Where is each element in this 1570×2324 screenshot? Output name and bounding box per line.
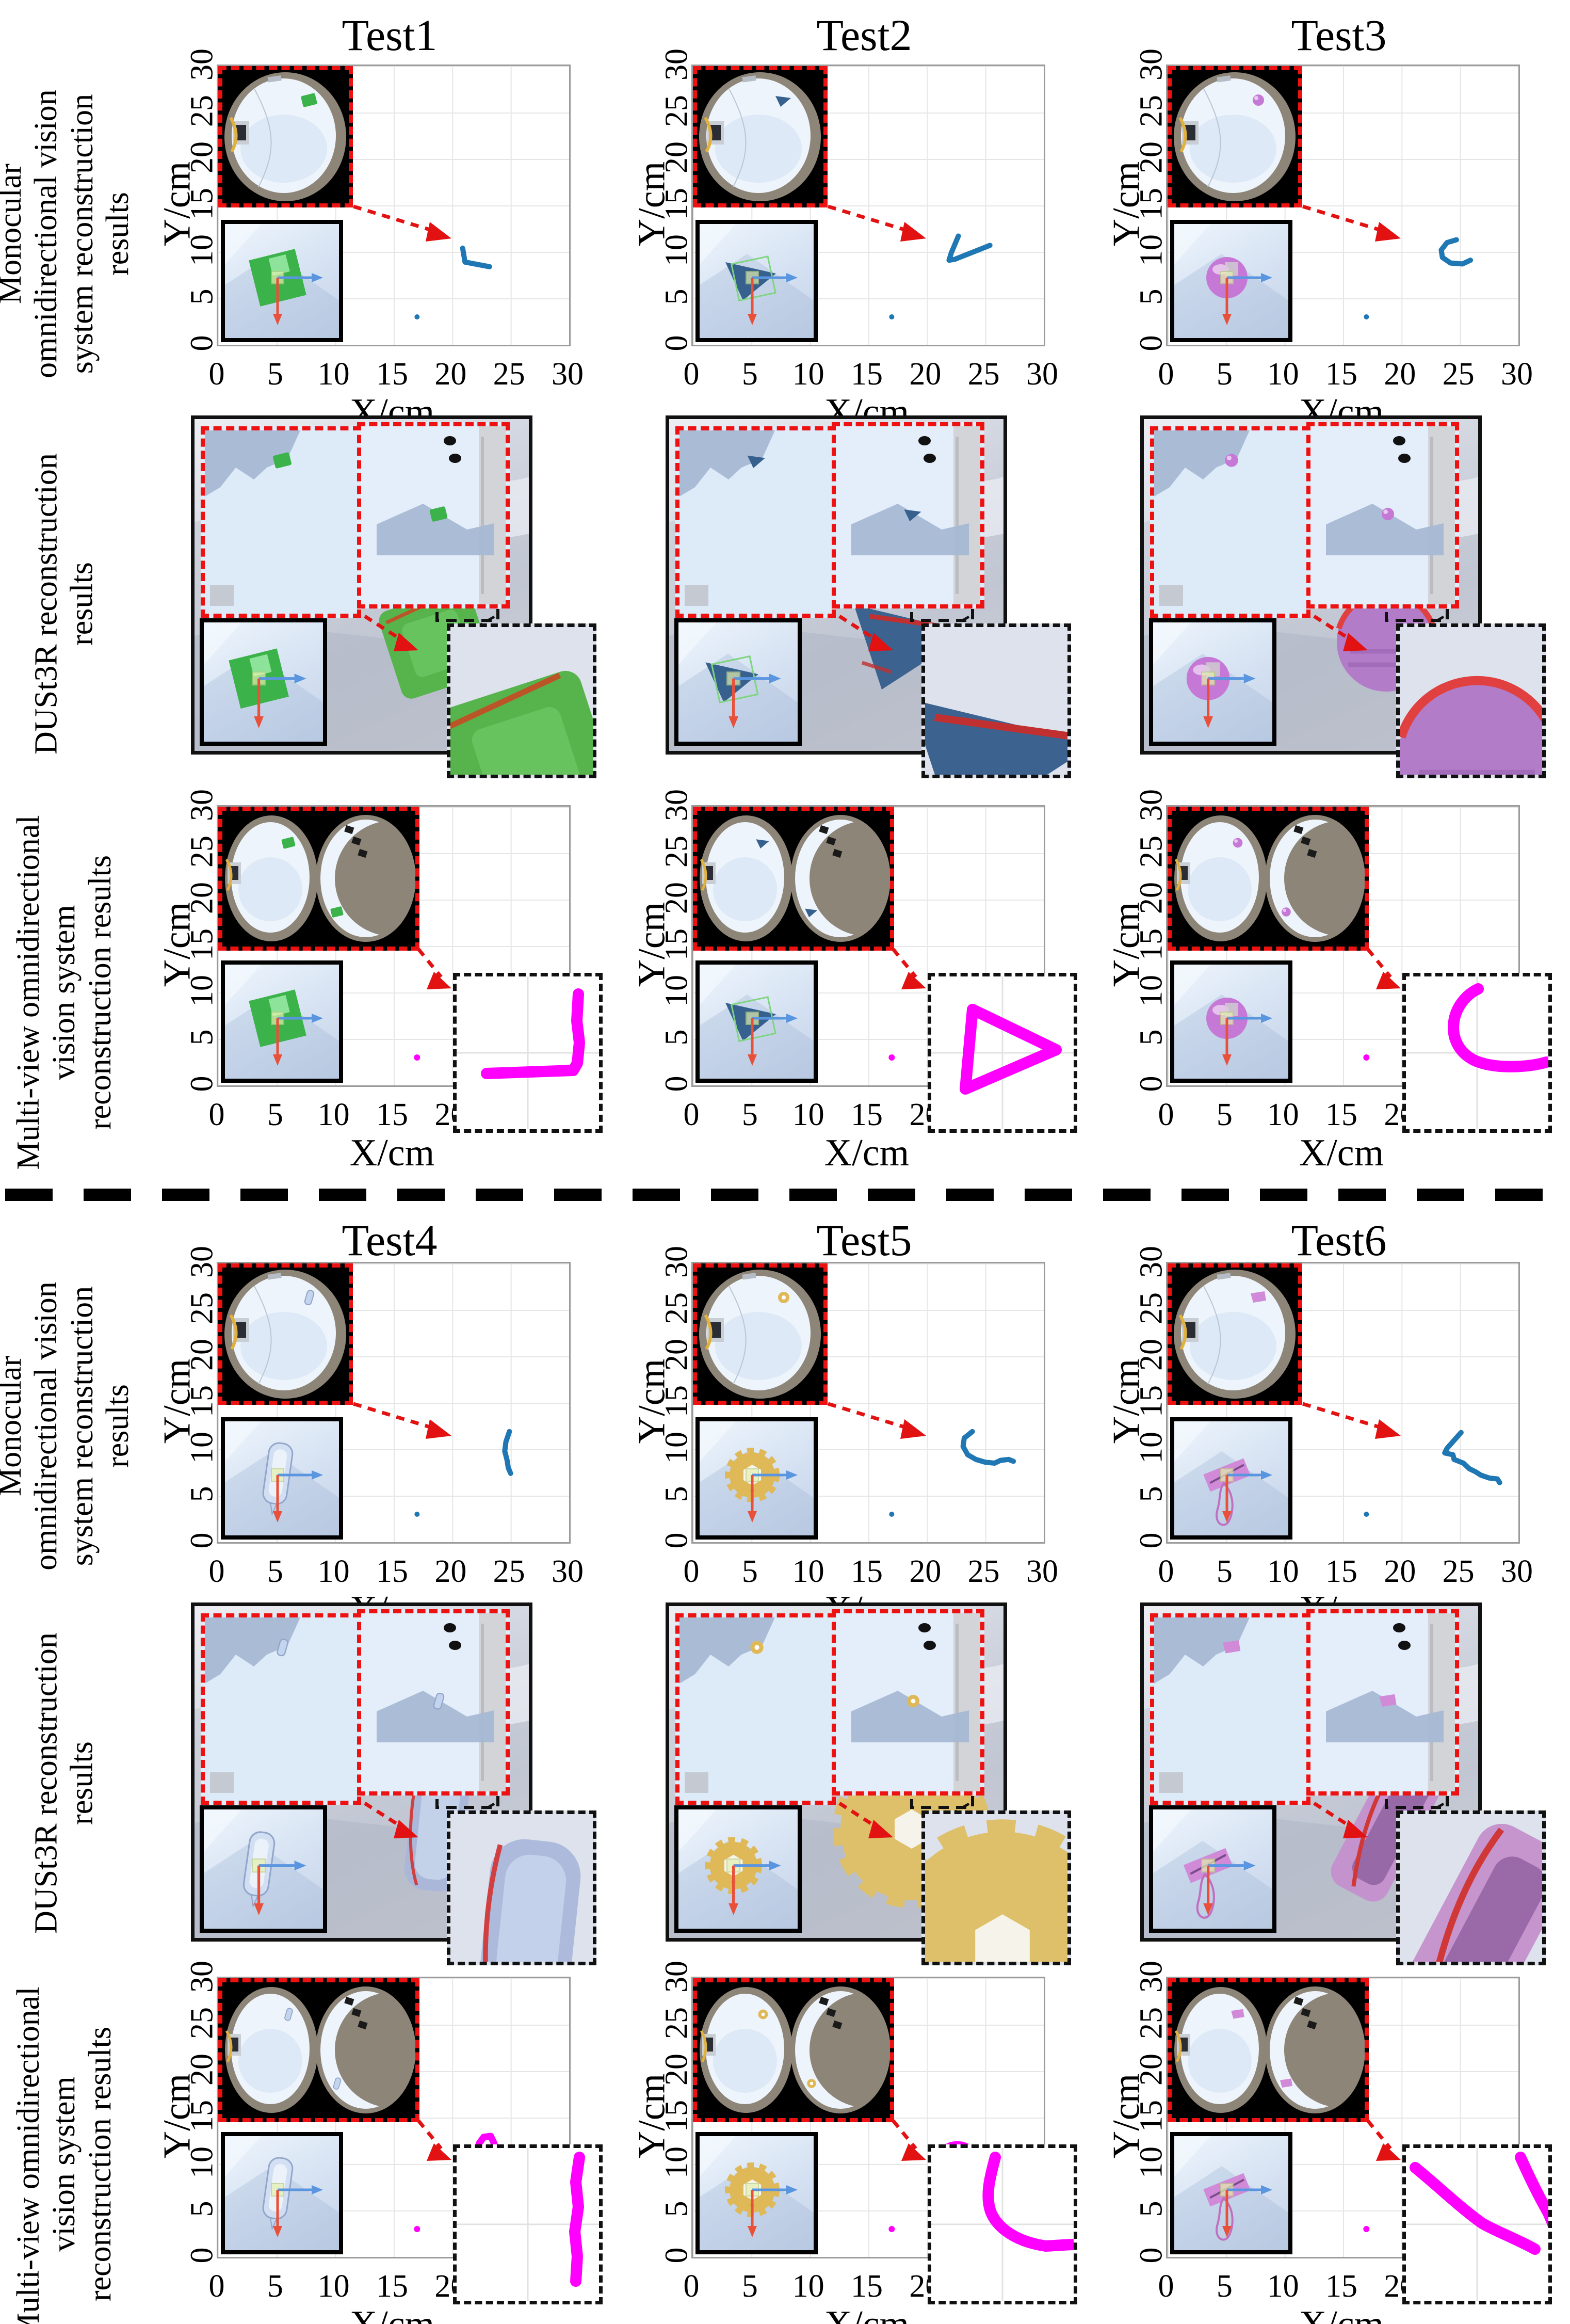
x-tick-label: 0	[209, 2268, 225, 2305]
row-label-text: DUSt3R reconstruction results	[29, 423, 101, 784]
scene-inset-right-test4	[357, 1609, 510, 1796]
x-tick-label: 5	[267, 2268, 283, 2305]
y-tick-label: 20	[1134, 2054, 1170, 2086]
y-tick-label: 25	[1134, 1292, 1170, 1324]
clamp-closeup-icon	[1174, 1421, 1288, 1535]
y-tick-label: 10	[659, 975, 695, 1007]
trajectory-zoom-box-test3	[1402, 973, 1552, 1133]
scene-view-icon	[361, 1613, 506, 1791]
fisheye-inset-test5	[693, 1978, 894, 2122]
row-label-dust3r: DUSt3R reconstruction results	[0, 1595, 129, 1972]
sphere-closeup-icon	[1153, 622, 1272, 742]
y-tick-label: 10	[184, 2146, 221, 2178]
fisheye-inset-test3	[1168, 66, 1302, 207]
fisheye-inset-test2	[693, 66, 828, 207]
row-label-text: Monocular omnidirectional vision system …	[0, 1257, 136, 1595]
x-tick-label: 15	[376, 1553, 408, 1590]
x-tick-label: 25	[493, 356, 525, 393]
x-tick-label: 20	[1384, 356, 1416, 393]
y-tick-label: 5	[184, 1486, 221, 1502]
column-title-test2: Test2	[627, 0, 1102, 59]
row-label-multiview: Multi-view omnidirectional vision system…	[0, 1972, 129, 2324]
x-tick-label: 15	[851, 1097, 883, 1133]
x-tick-label: 30	[1026, 1553, 1058, 1590]
y-tick-label: 20	[184, 882, 221, 914]
monocular-trajectory-path	[949, 236, 990, 260]
dust3r-panel-test3	[1078, 408, 1553, 800]
scene-view-icon	[679, 1617, 832, 1801]
object-inset-test1	[221, 220, 343, 342]
object-inset-test5	[695, 2132, 818, 2254]
scene-inset-left-test5	[675, 1613, 836, 1805]
y-tick-label: 20	[1134, 1339, 1170, 1371]
scene-inset-right-test1	[357, 422, 510, 608]
x-tick-label: 20	[1384, 1553, 1416, 1590]
row-dust3r-group1: DUSt3R reconstruction results	[0, 408, 1570, 800]
x-tick-label: 0	[1158, 2268, 1174, 2305]
y-tick-label: 10	[184, 234, 221, 266]
scene-view-icon	[1310, 1613, 1455, 1791]
x-tick-label: 20	[909, 356, 941, 393]
x-tick-label: 5	[742, 2268, 758, 2305]
gear-marker-icon	[758, 2010, 768, 2020]
x-tick-label: 30	[552, 1553, 584, 1590]
sphere-marker-icon	[1282, 907, 1291, 917]
object-inset-test2	[695, 220, 818, 342]
fisheye-inset-test6	[1168, 1263, 1302, 1405]
y-tick-label: 25	[1134, 95, 1170, 127]
plot-area-test1	[217, 65, 571, 346]
fisheye-view-icon	[1172, 70, 1298, 203]
object-inset-test5	[674, 1805, 802, 1933]
y-tick-label: 30	[659, 789, 695, 821]
object-inset-test1	[221, 960, 343, 1083]
x-tick-label: 20	[434, 356, 466, 393]
row-monocular-group1: Monocular omnidirectional vision system …	[0, 59, 1570, 408]
gear-closeup-icon	[700, 1421, 814, 1535]
test-group-1: Test1Test2Test3Monocular omnidirectional…	[0, 0, 1570, 1184]
y-tick-label: 0	[659, 2248, 695, 2264]
y-tick-label: 5	[184, 2201, 221, 2217]
y-tick-label: 30	[659, 1246, 695, 1278]
scene-view-icon	[205, 430, 357, 614]
trajectory-zoom-graphic	[1406, 2148, 1548, 2301]
x-tick-label: 10	[1267, 1097, 1299, 1133]
y-tick-label: 20	[184, 2054, 221, 2086]
y-tick-label: 5	[1134, 289, 1170, 305]
y-tick-label: 30	[1134, 1961, 1170, 1993]
scene-inset-left-test4	[201, 1613, 361, 1805]
y-tick-label: 0	[1134, 2248, 1170, 2264]
x-axis-label: X/cm	[824, 2303, 909, 2324]
y-tick-label: 25	[659, 95, 695, 127]
row-label-text: DUSt3R reconstruction results	[29, 1602, 101, 1964]
column-title-test4: Test4	[152, 1205, 627, 1257]
y-tick-label: 15	[1134, 2100, 1170, 2132]
multi-panel-test3: Y/cm005510101515202025253030X/cm	[1078, 800, 1553, 1184]
row-label-monocular: Monocular omnidirectional vision system …	[0, 1257, 129, 1595]
scene-inset-right-test3	[1306, 422, 1459, 608]
column-title-test3: Test3	[1102, 0, 1570, 59]
y-tick-label: 20	[1134, 141, 1170, 173]
render-zoom-graphic	[925, 1814, 1067, 1962]
sphere-marker-icon	[1253, 94, 1264, 106]
y-tick-label: 20	[184, 141, 221, 173]
column-title-test6: Test6	[1102, 1205, 1570, 1257]
x-tick-label: 0	[1158, 1097, 1174, 1133]
plot-area-test2	[691, 65, 1045, 346]
y-tick-label: 10	[1134, 234, 1170, 266]
x-tick-label: 30	[1501, 356, 1533, 393]
clamp-closeup-icon	[1153, 1809, 1272, 1929]
object-inset-test3	[1170, 960, 1292, 1083]
x-tick-label: 0	[684, 356, 700, 393]
y-tick-label: 5	[184, 289, 221, 305]
y-tick-label: 25	[1134, 2007, 1170, 2039]
multi-panel-test2: Y/cm005510101515202025253030X/cm	[604, 800, 1078, 1184]
bottle-closeup-icon	[225, 2136, 339, 2250]
scene-view-icon	[361, 426, 506, 604]
x-tick-label: 15	[1325, 2268, 1357, 2305]
y-tick-label: 0	[659, 1533, 695, 1549]
x-tick-label: 25	[968, 1553, 1000, 1590]
multi-panel-test4: Y/cm005510101515202025253030X/cm	[129, 1972, 604, 2324]
x-tick-label: 10	[1267, 1553, 1299, 1590]
trajectory-zoom-graphic	[457, 2148, 599, 2301]
trajectory-zoom-box-test4	[453, 2144, 603, 2304]
x-tick-label: 20	[909, 1553, 941, 1590]
scene-view-icon	[1154, 430, 1306, 614]
zoomed-trajectory-path	[575, 2157, 579, 2281]
render-zoom-box-test2	[921, 623, 1071, 778]
cube-closeup-icon	[204, 622, 323, 742]
object-inset-test6	[1170, 2132, 1292, 2254]
scene-inset-left-test2	[675, 426, 836, 618]
gear-closeup-icon	[678, 1809, 798, 1929]
y-tick-label: 0	[184, 1533, 221, 1549]
x-axis-label: X/cm	[1299, 2303, 1384, 2324]
trajectory-zoom-graphic	[931, 976, 1074, 1129]
dust3r-panel-test1	[129, 408, 604, 800]
clamp-closeup-icon	[1174, 2136, 1288, 2250]
x-axis-label: X/cm	[350, 1131, 434, 1175]
y-tick-label: 25	[184, 2007, 221, 2039]
y-tick-label: 5	[1134, 1030, 1170, 1046]
render-zoom-box-test5	[921, 1810, 1071, 1965]
trajectory-zoom-box-test2	[928, 973, 1077, 1133]
cube-closeup-icon	[225, 965, 339, 1079]
y-tick-label: 15	[659, 1385, 695, 1417]
monocular-trajectory-path	[1445, 1433, 1500, 1483]
column-title-text: Test3	[1291, 10, 1386, 60]
red-arrow-icon	[1368, 949, 1401, 989]
x-tick-label: 10	[792, 356, 824, 393]
x-tick-label: 0	[209, 1097, 225, 1133]
fisheye-inset-test4	[218, 1263, 353, 1405]
x-tick-label: 25	[968, 356, 1000, 393]
x-tick-label: 5	[1217, 1553, 1233, 1590]
y-tick-label: 15	[1134, 928, 1170, 960]
dual-fisheye-view-icon	[222, 1982, 415, 2118]
fisheye-view-icon	[697, 70, 823, 203]
y-tick-label: 20	[659, 1339, 695, 1371]
y-tick-label: 15	[1134, 188, 1170, 220]
row-label-multiview: Multi-view omnidirectional vision system…	[0, 800, 129, 1184]
render-zoom-box-test4	[447, 1810, 596, 1965]
x-tick-label: 5	[742, 1097, 758, 1133]
y-tick-label: 5	[1134, 2201, 1170, 2217]
object-inset-test6	[1149, 1805, 1276, 1933]
fisheye-inset-test5	[693, 1263, 828, 1405]
y-tick-label: 10	[659, 234, 695, 266]
gear-marker-icon	[750, 1641, 763, 1654]
stray-point	[1364, 314, 1369, 319]
object-inset-test3	[1149, 618, 1276, 746]
row-multiview-group2: Multi-view omnidirectional vision system…	[0, 1972, 1570, 2324]
mono-panel-test1: Y/cm005510101515202025253030X/cm	[129, 59, 604, 408]
dust3r-panel-test6	[1078, 1595, 1553, 1972]
y-tick-label: 10	[659, 1432, 695, 1464]
multi-panel-test1: Y/cm005510101515202025253030X/cm	[129, 800, 604, 1184]
y-tick-label: 10	[659, 2146, 695, 2178]
stray-point	[888, 1054, 895, 1061]
y-tick-label: 30	[1134, 49, 1170, 81]
triangle-closeup-icon	[678, 622, 798, 742]
row-label-dust3r: DUSt3R reconstruction results	[0, 408, 129, 800]
x-tick-label: 15	[376, 2268, 408, 2305]
red-arrow-icon	[418, 2121, 451, 2161]
y-tick-label: 0	[184, 2248, 221, 2264]
fisheye-inset-test4	[218, 1978, 419, 2122]
scene-inset-right-test6	[1306, 1609, 1459, 1796]
triangle-closeup-icon	[700, 965, 814, 1079]
dust3r-panel-test2	[604, 408, 1078, 800]
fisheye-inset-test3	[1168, 807, 1369, 951]
group-separator	[0, 1184, 1570, 1205]
y-tick-label: 0	[1134, 1533, 1170, 1549]
y-tick-label: 10	[184, 1432, 221, 1464]
y-tick-label: 25	[659, 836, 695, 868]
red-arrow-icon	[1303, 1404, 1401, 1439]
object-inset-test4	[200, 1805, 327, 1933]
dual-fisheye-view-icon	[222, 811, 415, 947]
sphere-marker-icon	[1382, 508, 1394, 520]
x-tick-label: 10	[318, 1553, 350, 1590]
trajectory-zoom-box-test6	[1402, 2144, 1552, 2304]
x-tick-label: 10	[1267, 356, 1299, 393]
y-tick-label: 10	[1134, 2146, 1170, 2178]
sphere-marker-icon	[1233, 838, 1243, 848]
column-titles-row: Test1Test2Test3	[0, 0, 1570, 59]
red-arrow-icon	[828, 206, 926, 242]
y-tick-label: 30	[1134, 1246, 1170, 1278]
x-tick-label: 5	[742, 356, 758, 393]
scene-inset-left-test1	[201, 426, 361, 618]
dual-fisheye-view-icon	[697, 811, 890, 947]
x-tick-label: 15	[851, 2268, 883, 2305]
x-tick-label: 15	[1325, 356, 1357, 393]
object-inset-test4	[221, 2132, 343, 2254]
stray-point	[1363, 1054, 1369, 1061]
mono-panel-test5: Y/cm005510101515202025253030X/cm	[604, 1257, 1078, 1595]
scene-inset-right-test5	[832, 1609, 984, 1796]
stray-point	[414, 2226, 420, 2232]
render-zoom-box-test3	[1396, 623, 1546, 778]
object-inset-test2	[674, 618, 802, 746]
row-label-text: Monocular omnidirectional vision system …	[0, 59, 136, 408]
y-tick-label: 15	[659, 188, 695, 220]
y-tick-label: 25	[184, 1292, 221, 1324]
fisheye-view-icon	[222, 1268, 349, 1401]
fisheye-view-icon	[1172, 1268, 1298, 1401]
dual-fisheye-view-icon	[1172, 1982, 1365, 2118]
fisheye-inset-test2	[693, 807, 894, 951]
y-tick-label: 5	[659, 2201, 695, 2217]
fisheye-view-icon	[697, 1268, 823, 1401]
x-tick-label: 5	[267, 1097, 283, 1133]
y-tick-label: 30	[659, 49, 695, 81]
object-inset-test1	[200, 618, 327, 746]
y-tick-label: 10	[1134, 975, 1170, 1007]
render-zoom-box-test1	[447, 623, 596, 778]
multi-panel-test5: Y/cm005510101515202025253030X/cm	[604, 1972, 1078, 2324]
gear-closeup-icon	[700, 2136, 814, 2250]
y-tick-label: 15	[659, 2100, 695, 2132]
x-tick-label: 10	[792, 1097, 824, 1133]
dashed-divider-line	[5, 1189, 1565, 1201]
x-tick-label: 0	[1158, 1553, 1174, 1590]
object-inset-test3	[1170, 220, 1292, 342]
trajectory-zoom-box-test5	[928, 2144, 1077, 2304]
x-tick-label: 15	[376, 1097, 408, 1133]
x-tick-label: 5	[742, 1553, 758, 1590]
y-tick-label: 30	[184, 1961, 221, 1993]
scene-inset-left-test6	[1150, 1613, 1310, 1805]
x-tick-label: 5	[267, 1553, 283, 1590]
dust3r-panel-test5	[604, 1595, 1078, 1972]
x-axis-label: X/cm	[350, 2303, 434, 2324]
y-tick-label: 15	[1134, 1385, 1170, 1417]
x-tick-label: 5	[1217, 2268, 1233, 2305]
triangle-closeup-icon	[700, 224, 814, 338]
y-tick-label: 25	[659, 2007, 695, 2039]
red-arrow-icon	[418, 949, 451, 989]
y-tick-label: 0	[184, 1076, 221, 1092]
render-zoom-graphic	[1400, 1814, 1542, 1962]
scene-view-icon	[1154, 1617, 1306, 1801]
row-label-text: Multi-view omnidirectional vision system…	[11, 1983, 118, 2324]
y-tick-label: 0	[1134, 335, 1170, 351]
fisheye-inset-test1	[218, 66, 353, 207]
sphere-closeup-icon	[1174, 224, 1288, 338]
y-tick-label: 20	[659, 882, 695, 914]
stray-point	[414, 1512, 419, 1517]
stray-point	[414, 1054, 420, 1061]
monocular-trajectory-path	[963, 1432, 1014, 1463]
plot-area-test5	[691, 1262, 1045, 1544]
scene-inset-right-test2	[832, 422, 984, 608]
x-tick-label: 10	[318, 356, 350, 393]
x-tick-label: 15	[851, 356, 883, 393]
monocular-trajectory-path	[463, 248, 490, 267]
scene-view-icon	[836, 1613, 980, 1791]
x-tick-label: 25	[1443, 356, 1475, 393]
object-inset-test4	[221, 1417, 343, 1540]
y-tick-label: 5	[659, 1030, 695, 1046]
bottle-closeup-icon	[225, 1421, 339, 1535]
bottle-closeup-icon	[204, 1809, 323, 1929]
x-tick-label: 10	[318, 1097, 350, 1133]
row-dust3r-group2: DUSt3R reconstruction results	[0, 1595, 1570, 1972]
y-tick-label: 25	[184, 836, 221, 868]
y-tick-label: 10	[184, 975, 221, 1007]
gear-marker-icon	[778, 1292, 789, 1303]
x-tick-label: 30	[552, 356, 584, 393]
gear-marker-icon	[807, 2079, 816, 2088]
y-tick-label: 20	[659, 141, 695, 173]
mono-panel-test3: Y/cm005510101515202025253030X/cm	[1078, 59, 1553, 408]
mono-panel-test6: Y/cm005510101515202025253030X/cm	[1078, 1257, 1553, 1595]
figure-page: Test1Test2Test3Monocular omnidirectional…	[0, 0, 1570, 2324]
render-zoom-graphic	[450, 1814, 593, 1962]
column-title-text: Test2	[816, 10, 912, 60]
x-tick-label: 0	[209, 1553, 225, 1590]
red-arrow-icon	[1368, 2121, 1401, 2161]
stray-point	[1364, 1512, 1369, 1517]
row-label-text: Multi-view omnidirectional vision system…	[11, 812, 118, 1173]
red-arrow-icon	[893, 2121, 926, 2161]
y-tick-label: 0	[659, 335, 695, 351]
y-tick-label: 30	[184, 1246, 221, 1278]
object-inset-test2	[695, 960, 818, 1083]
red-arrow-icon	[353, 1404, 451, 1439]
y-tick-label: 15	[184, 1385, 221, 1417]
y-tick-label: 30	[1134, 789, 1170, 821]
x-tick-label: 10	[318, 2268, 350, 2305]
x-tick-label: 10	[1267, 2268, 1299, 2305]
x-axis-label: X/cm	[1299, 1131, 1384, 1175]
stray-point	[888, 2226, 895, 2232]
sphere-closeup-icon	[1174, 965, 1288, 1079]
x-tick-label: 10	[792, 1553, 824, 1590]
trajectory-zoom-graphic	[457, 976, 599, 1129]
y-tick-label: 20	[1134, 882, 1170, 914]
red-arrow-icon	[828, 1404, 926, 1439]
dual-fisheye-view-icon	[697, 1982, 890, 2118]
y-tick-label: 30	[184, 789, 221, 821]
x-tick-label: 15	[1325, 1553, 1357, 1590]
column-titles-row: Test4Test5Test6	[0, 1205, 1570, 1257]
x-tick-label: 15	[851, 1553, 883, 1590]
row-label-monocular: Monocular omnidirectional vision system …	[0, 59, 129, 408]
y-tick-label: 10	[1134, 1432, 1170, 1464]
mono-panel-test2: Y/cm005510101515202025253030X/cm	[604, 59, 1078, 408]
y-tick-label: 15	[184, 188, 221, 220]
x-tick-label: 20	[434, 1553, 466, 1590]
stray-point	[1363, 2226, 1369, 2232]
stray-point	[889, 314, 894, 319]
fisheye-view-icon	[222, 70, 349, 203]
column-title-test5: Test5	[627, 1205, 1102, 1257]
red-arrow-icon	[893, 949, 926, 989]
y-tick-label: 25	[184, 95, 221, 127]
x-tick-label: 5	[1217, 356, 1233, 393]
plot-area-test4	[217, 1262, 571, 1544]
scene-view-icon	[836, 426, 980, 604]
x-tick-label: 0	[1158, 356, 1174, 393]
dust3r-panel-test4	[129, 1595, 604, 1972]
y-tick-label: 30	[184, 49, 221, 81]
